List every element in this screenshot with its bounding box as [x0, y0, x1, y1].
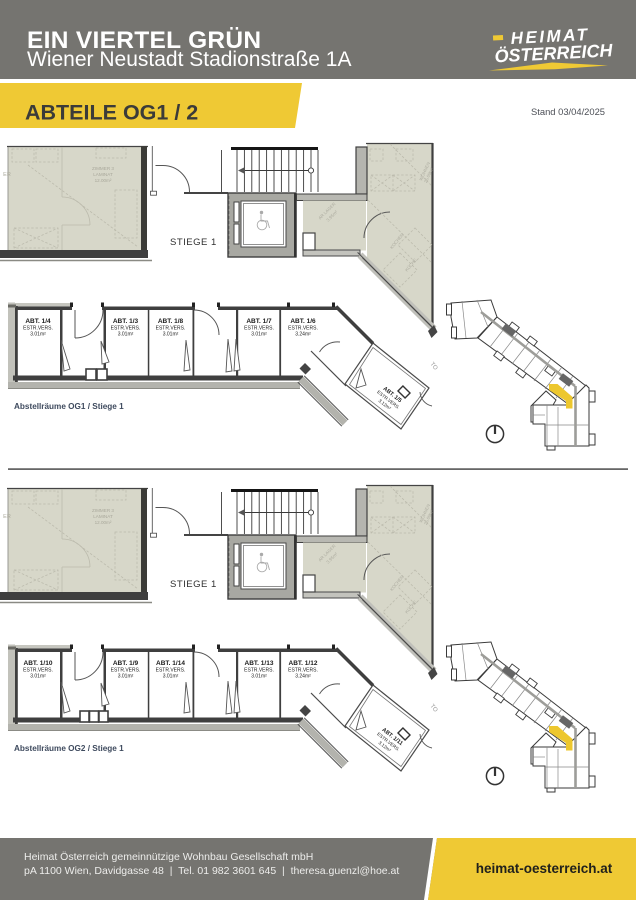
svg-text:ABT. 1/13: ABT. 1/13 — [245, 660, 274, 667]
svg-text:ABT. 1/7: ABT. 1/7 — [246, 318, 272, 325]
svg-text:3.24m²: 3.24m² — [295, 674, 311, 680]
svg-text:3.01m²: 3.01m² — [163, 674, 179, 680]
svg-text:3.01m²: 3.01m² — [118, 332, 134, 338]
svg-text:3.01m²: 3.01m² — [163, 332, 179, 338]
svg-text:ABT. 1/3: ABT. 1/3 — [113, 318, 139, 325]
svg-text:3.01m²: 3.01m² — [251, 332, 267, 338]
svg-text:3.01m²: 3.01m² — [30, 674, 46, 680]
svg-text:Abstellräume OG2 / Stiege 1: Abstellräume OG2 / Stiege 1 — [14, 744, 124, 753]
svg-text:Abstellräume OG1 / Stiege 1: Abstellräume OG1 / Stiege 1 — [14, 402, 124, 411]
svg-text:ABT. 1/6: ABT. 1/6 — [290, 318, 316, 325]
svg-text:3.01m²: 3.01m² — [118, 674, 134, 680]
svg-text:ABT. 1/14: ABT. 1/14 — [156, 660, 185, 667]
svg-text:ABT. 1/8: ABT. 1/8 — [158, 318, 184, 325]
svg-text:ABT. 1/9: ABT. 1/9 — [113, 660, 139, 667]
svg-text:3.01m²: 3.01m² — [251, 674, 267, 680]
svg-text:ABT. 1/10: ABT. 1/10 — [24, 660, 53, 667]
svg-text:3.24m²: 3.24m² — [295, 332, 311, 338]
svg-text:ABT. 1/4: ABT. 1/4 — [25, 318, 51, 325]
svg-text:3.01m²: 3.01m² — [30, 332, 46, 338]
svg-text:ABT. 1/12: ABT. 1/12 — [289, 660, 318, 667]
